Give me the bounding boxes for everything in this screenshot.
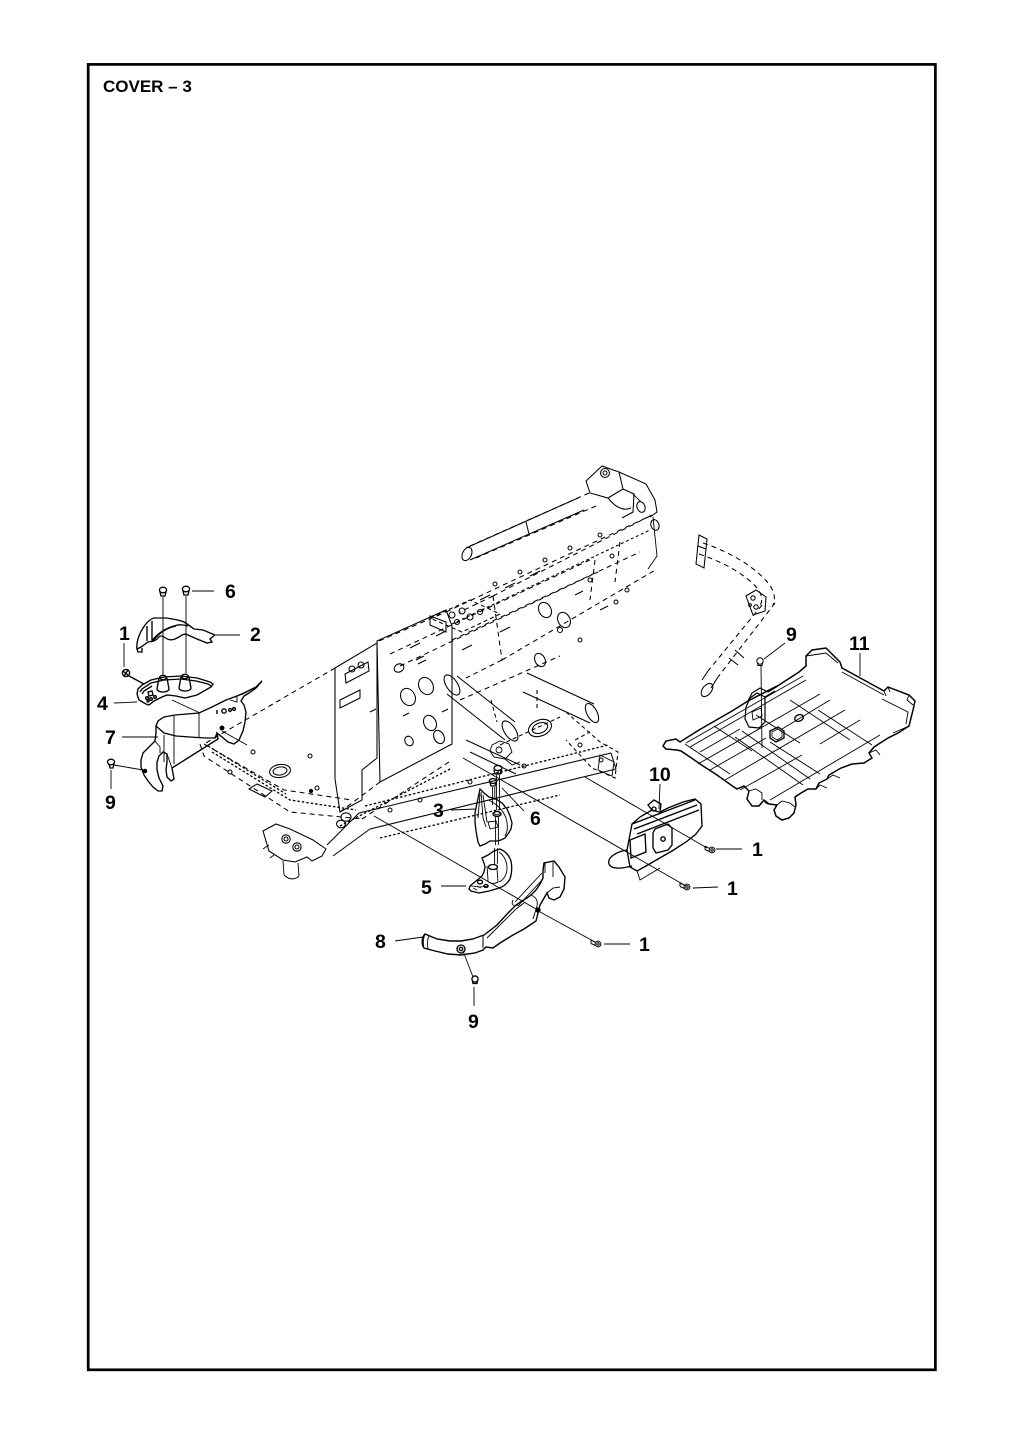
svg-text:9: 9 xyxy=(786,624,797,646)
svg-text:1: 1 xyxy=(752,839,763,861)
svg-text:4: 4 xyxy=(97,693,108,715)
svg-text:10: 10 xyxy=(649,764,671,786)
svg-text:COVER – 3: COVER – 3 xyxy=(103,77,192,96)
svg-text:5: 5 xyxy=(421,877,432,899)
svg-text:9: 9 xyxy=(468,1011,479,1033)
svg-text:2: 2 xyxy=(250,624,261,646)
svg-text:1: 1 xyxy=(727,878,738,900)
svg-text:7: 7 xyxy=(105,727,116,749)
svg-text:1: 1 xyxy=(639,934,650,956)
svg-text:8: 8 xyxy=(375,931,386,953)
svg-text:9: 9 xyxy=(105,792,116,814)
svg-text:6: 6 xyxy=(225,581,236,603)
svg-text:1: 1 xyxy=(119,623,130,645)
svg-text:11: 11 xyxy=(849,633,870,655)
svg-text:6: 6 xyxy=(530,808,541,830)
svg-text:3: 3 xyxy=(433,800,444,822)
